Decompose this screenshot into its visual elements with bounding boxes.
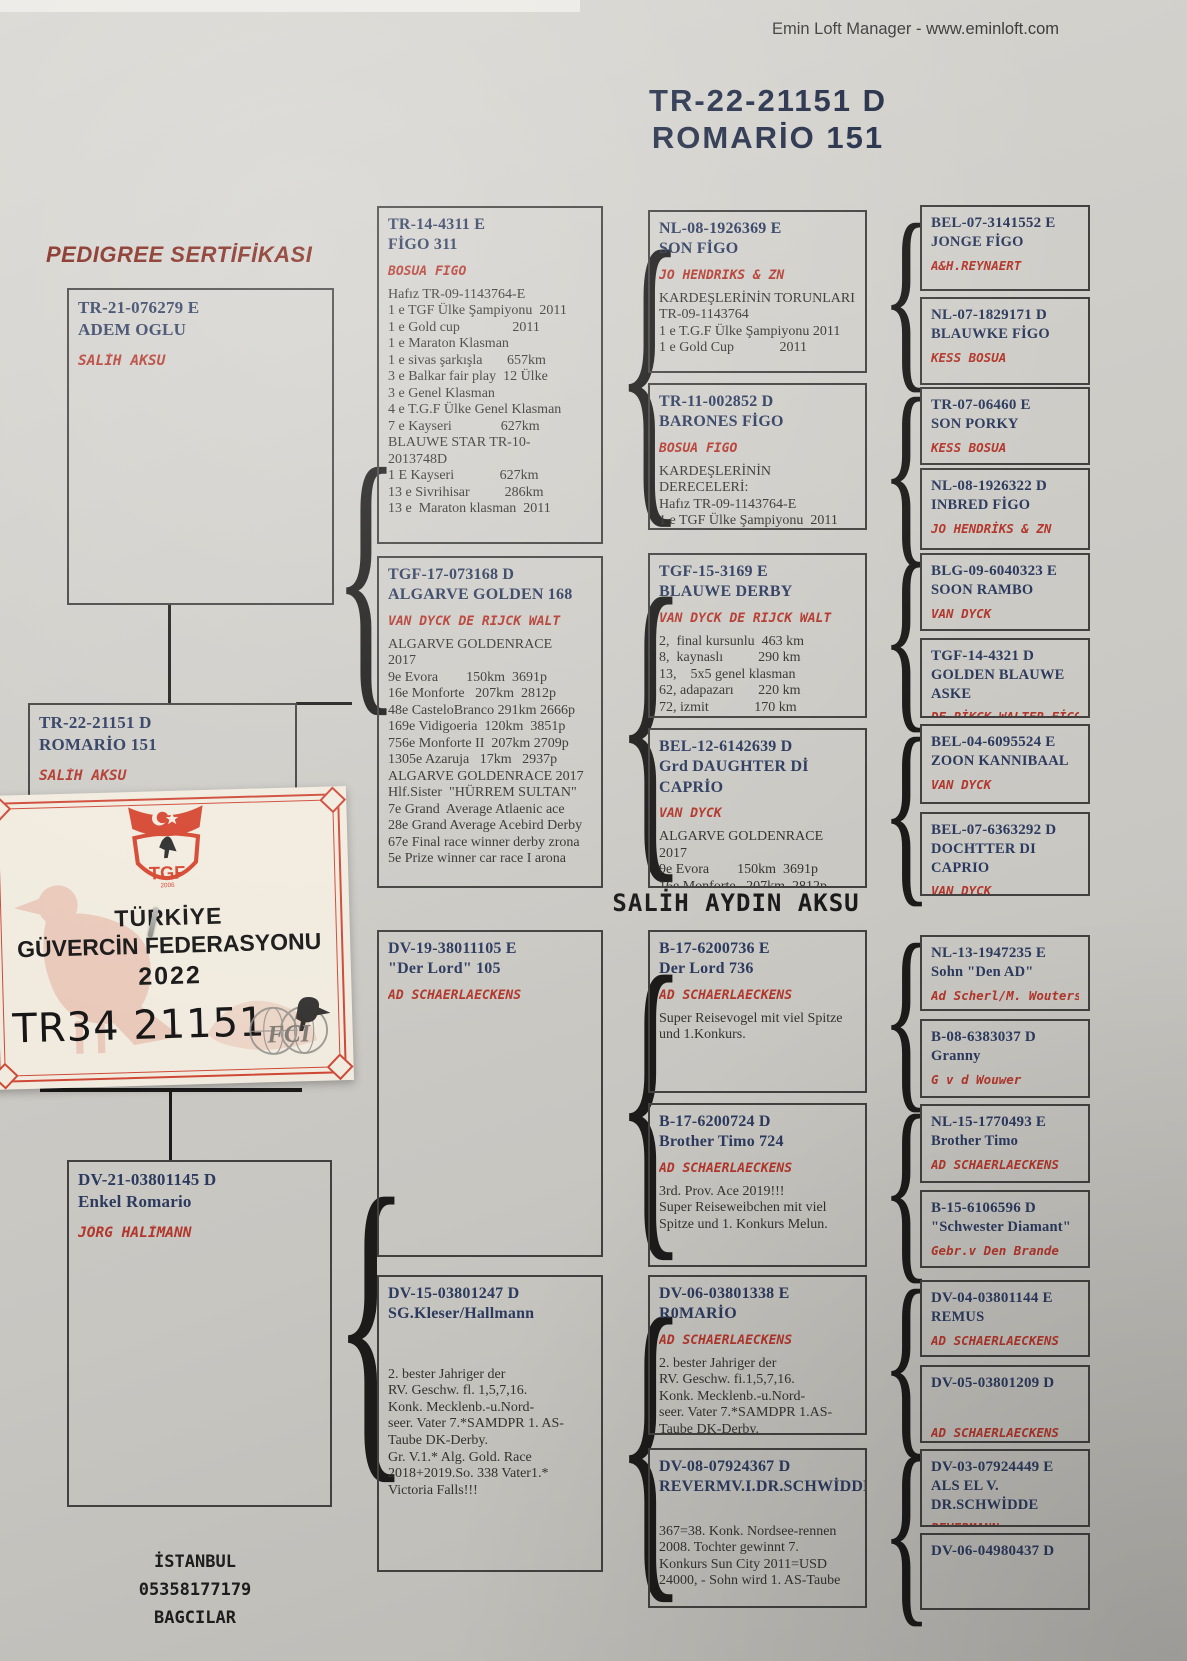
pedigree-box-sohn-den-ad: NL-13-1947235 E Sohn "Den AD" Ad Scherl/… — [920, 935, 1090, 1011]
ring-id: NL-15-1770493 E — [931, 1113, 1079, 1132]
ring-id: B-08-6383037 D — [931, 1028, 1079, 1047]
pedigree-box-der-lord-105: DV-19-38011105 E "Der Lord" 105 AD SCHAE… — [377, 930, 603, 1257]
owner-name: Gebr.v Den Brande — [931, 1243, 1079, 1258]
pigeon-name: DOCHTTER DI CAPRIO — [931, 840, 1079, 877]
pigeon-name: SON PORKY — [931, 415, 1079, 434]
pedigree-box-sire: TR-21-076279 E ADEM OGLU SALİH AKSU — [67, 288, 334, 605]
achievements: Super Reisevogel mit viel Spitze und 1.K… — [659, 1011, 856, 1044]
tgf-shield-logo-icon: TGF 2006 — [115, 801, 218, 907]
ring-id: TGF-17-073168 D — [388, 565, 592, 585]
pedigree-box-remus: DV-04-03801144 E REMUS AD SCHAERLAECKENS — [920, 1280, 1090, 1357]
pigeon-name: REVERMV.I.DR.SCHWİDDE — [659, 1477, 856, 1497]
pigeon-name: INBRED FİGO — [931, 496, 1079, 515]
fci-globes-pigeon-emblem-icon: FCI — [241, 986, 339, 1061]
achievements: ALGARVE GOLDENRACE 2017 9e Evora 150km 3… — [388, 637, 592, 868]
owner-name: DE RİKCK WALTER FİGO — [931, 709, 1079, 718]
pedigree-box-granny: B-08-6383037 D Granny G v d Wouwer — [920, 1019, 1090, 1098]
owner-name: KESS BOSUA — [931, 440, 1079, 455]
ring-id: NL-07-1829171 D — [931, 306, 1079, 325]
tgf-federation-sticker: TGF 2006 TÜRKİYE GÜVERCİN FEDERASYONU 20… — [0, 786, 354, 1090]
ring-id: DV-21-03801145 D — [78, 1169, 321, 1191]
pigeon-name: REMUS — [931, 1308, 1079, 1327]
achievements: 367=38. Konk. Nordsee-rennen 2008. Tocht… — [659, 1524, 856, 1590]
ring-id: TR-22-21151 D — [39, 712, 286, 734]
title-pigeon-name: ROMARİO 151 — [548, 119, 988, 156]
owner-name: Ad Scherl/M. Wouters — [931, 988, 1079, 1003]
pedigree-box-inbred-figo: NL-08-1926322 D INBRED FİGO JO HENDRİKS … — [920, 468, 1090, 550]
ring-id: BEL-12-6142639 D — [659, 737, 856, 757]
connector-line — [169, 1090, 172, 1160]
ring-id: B-17-6200724 D — [659, 1112, 856, 1132]
pedigree-box-zoon-kannibaal: BEL-04-6095524 E ZOON KANNIBAAL VAN DYCK — [920, 724, 1090, 804]
breeder-district: BAGCILAR — [85, 1604, 305, 1632]
pedigree-box-son-porky: TR-07-06460 E SON PORKY KESS BOSUA — [920, 387, 1090, 465]
achievements: 3rd. Prov. Ace 2019!!! Super Reiseweibch… — [659, 1184, 856, 1234]
owner-name: G v d Wouwer — [931, 1072, 1079, 1087]
achievements: 2. bester Jahriger der RV. Geschw. fi.1,… — [659, 1356, 856, 1435]
page-title: TR-22-21151 D ROMARİO 151 — [548, 82, 988, 156]
ring-id: DV-19-38011105 E — [388, 939, 592, 959]
breeder-city: İSTANBUL — [85, 1548, 305, 1576]
pigeon-name: JONGE FİGO — [931, 233, 1079, 252]
owner-name: AD SCHAERLAECKENS — [659, 1161, 856, 1177]
pedigree-certificate-photo: Emin Loft Manager - www.eminloft.com TR-… — [0, 0, 1187, 1661]
pigeon-name: Sohn "Den AD" — [931, 963, 1079, 982]
pigeon-name: ALS EL V. DR.SCHWİDDE — [931, 1477, 1079, 1514]
owner-name: AD SCHAERLAECKENS — [388, 988, 592, 1004]
ring-id: DV-08-07924367 D — [659, 1457, 856, 1477]
owner-name: KESS BOSUA — [931, 350, 1079, 365]
pedigree-box-barones-figo: TR-11-002852 D BARONES FİGO BOSUA FİGO K… — [648, 383, 867, 530]
pedigree-box-son-figo: NL-08-1926369 E SON FİGO JO HENDRİKS & Z… — [648, 210, 867, 373]
pedigree-box-grd-daughter-di-caprio: BEL-12-6142639 D Grd DAUGHTER Dİ CAPRİO … — [648, 728, 867, 888]
pigeon-name: R0MARİO — [659, 1304, 856, 1324]
ring-id: TR-07-06460 E — [931, 396, 1079, 415]
pedigree-box-romario-1338: DV-06-03801338 E R0MARİO AD SCHAERLAECKE… — [648, 1275, 867, 1435]
pedigree-box-dv-05-03801209: DV-05-03801209 D AD SCHAERLAECKENS — [920, 1365, 1090, 1443]
pedigree-box-brother-timo: NL-15-1770493 E Brother Timo AD SCHAERLA… — [920, 1104, 1090, 1183]
pigeon-name: Der Lord 736 — [659, 959, 856, 979]
pigeon-name: ADEM OGLU — [78, 319, 323, 341]
owner-name: AD SCHAERLAECKENS — [659, 1333, 856, 1349]
software-credit: Emin Loft Manager - www.eminloft.com — [772, 20, 1059, 39]
owner-name: AD SCHAERLAECKENS — [659, 988, 856, 1004]
pigeon-name: ROMARİO 151 — [39, 734, 286, 756]
pedigree-certificate-label: PEDIGREE SERTİFİKASI — [46, 242, 312, 268]
owner-name: VAN DYCK DE RİJCK WALT — [388, 614, 592, 630]
ring-serial-number: TR34 21151 — [12, 999, 266, 1052]
pedigree-box-figo-311: TR-14-4311 E FİGO 311 BOSUA FİGO Hafız T… — [377, 206, 603, 544]
ring-id: DV-15-03801247 D — [388, 1284, 592, 1304]
owner-name: JÖRG HALİMANN — [78, 1225, 321, 1242]
ring-id: BEL-04-6095524 E — [931, 733, 1079, 752]
ring-id: B-17-6200736 E — [659, 939, 856, 959]
ring-id: BEL-07-3141552 E — [931, 214, 1079, 233]
owner-name: VAN DYCK DE RİJCK WALT — [659, 611, 856, 627]
pedigree-box-blauwke-figo: NL-07-1829171 D BLAUWKE FİGO KESS BOSUA — [920, 297, 1090, 385]
achievements: KARDEŞLERİNİN TORUNLARI TR-09-1143764 1 … — [659, 291, 856, 357]
pedigree-box-soon-rambo: BLG-09-6040323 E SOON RAMBO VAN DYCK — [920, 553, 1090, 631]
pigeon-name: SOON RAMBO — [931, 581, 1079, 600]
pigeon-name: "Der Lord" 105 — [388, 959, 592, 979]
ring-id: B-15-6106596 D — [931, 1199, 1079, 1218]
owner-name: REVERMANN — [931, 1520, 1079, 1527]
achievements: 2, final kursunlu 463 km 8, kaynaslı 290… — [659, 634, 856, 717]
achievements: 2. bester Jahriger der RV. Geschw. fl. 1… — [388, 1367, 592, 1499]
pigeon-name: Grd DAUGHTER Dİ CAPRİO — [659, 757, 856, 798]
ring-id: BEL-07-6363292 D — [931, 821, 1079, 840]
pigeon-name: BARONES FİGO — [659, 412, 856, 432]
pedigree-box-schwester-diamant: B-15-6106596 D "Schwester Diamant" Gebr.… — [920, 1190, 1090, 1268]
pigeon-name: Brother Timo — [931, 1132, 1079, 1151]
pigeon-name: "Schwester Diamant" — [931, 1218, 1079, 1237]
owner-name: AD SCHAERLAECKENS — [931, 1425, 1079, 1440]
ring-id: DV-04-03801144 E — [931, 1289, 1079, 1308]
pedigree-box-revermv-dr-schwidde: DV-08-07924367 D REVERMV.I.DR.SCHWİDDE 3… — [648, 1448, 867, 1608]
photo-edge-highlight — [0, 0, 580, 12]
owner-name: AD SCHAERLAECKENS — [931, 1157, 1079, 1172]
ring-id: TGF-15-3169 E — [659, 562, 856, 582]
owner-name: VAN DYCK — [931, 777, 1079, 792]
owner-name: SALİH AKSU — [78, 353, 323, 370]
ring-id: BLG-09-6040323 E — [931, 562, 1079, 581]
pedigree-box-brother-timo-724: B-17-6200724 D Brother Timo 724 AD SCHAE… — [648, 1103, 867, 1267]
ring-id: TR-14-4311 E — [388, 215, 592, 235]
owner-name: VAN DYCK — [931, 883, 1079, 896]
ring-id: TR-21-076279 E — [78, 297, 323, 319]
ring-id: DV-06-04980437 D — [931, 1542, 1079, 1561]
ring-id: TGF-14-4321 D — [931, 647, 1079, 666]
owner-name: AD SCHAERLAECKENS — [931, 1333, 1079, 1348]
pedigree-box-blauwe-derby: TGF-15-3169 E BLAUWE DERBY VAN DYCK DE R… — [648, 553, 867, 718]
owner-name: SALİH AKSU — [39, 768, 286, 785]
owner-name: BOSUA FİGO — [659, 441, 856, 457]
connector-line — [168, 605, 171, 703]
achievements: Hafız TR-09-1143764-E 1 e TGF Ülke Şampi… — [388, 287, 592, 518]
pedigree-box-golden-blauwe-aske: TGF-14-4321 D GOLDEN BLAUWE ASKE DE RİKC… — [920, 638, 1090, 718]
owner-name: BOSUA FİGO — [388, 264, 592, 280]
pigeon-name: SON FİGO — [659, 239, 856, 259]
ring-id: DV-06-03801338 E — [659, 1284, 856, 1304]
pigeon-name: ALGARVE GOLDEN 168 — [388, 585, 592, 605]
owner-name: JO HENDRİKS & ZN — [659, 268, 856, 284]
pedigree-box-als-el-v-dr-schwidde: DV-03-07924449 E ALS EL V. DR.SCHWİDDE R… — [920, 1449, 1090, 1527]
pedigree-box-jonge-figo: BEL-07-3141552 E JONGE FİGO A&H.REYNAERT — [920, 205, 1090, 291]
pigeon-name: Granny — [931, 1047, 1079, 1066]
pigeon-name: BLAUWKE FİGO — [931, 325, 1079, 344]
ring-id: NL-08-1926369 E — [659, 219, 856, 239]
pigeon-name: Enkel Romario — [78, 1191, 321, 1213]
breeder-phone: 05358177179 — [85, 1576, 305, 1604]
owner-name: VAN DYCK — [659, 806, 856, 822]
tgf-logo-text: TGF — [149, 862, 186, 883]
pedigree-box-dochtter-di-caprio: BEL-07-6363292 D DOCHTTER DI CAPRIO VAN … — [920, 812, 1090, 896]
ring-id: DV-05-03801209 D — [931, 1374, 1079, 1393]
owner-name: VAN DYCK — [931, 606, 1079, 621]
pedigree-box-dv-06-04980437: DV-06-04980437 D — [920, 1533, 1090, 1610]
pigeon-name: Brother Timo 724 — [659, 1132, 856, 1152]
pigeon-name: SG.Kleser/Hallmann — [388, 1304, 592, 1324]
ring-id: DV-03-07924449 E — [931, 1458, 1079, 1477]
pigeon-name: BLAUWE DERBY — [659, 582, 856, 602]
ring-id: TR-11-002852 D — [659, 392, 856, 412]
fci-emblem-text: FCI — [266, 1020, 312, 1048]
pedigree-box-sg-kleser-hallmann: DV-15-03801247 D SG.Kleser/Hallmann 2. b… — [377, 1275, 603, 1572]
pedigree-box-dam: DV-21-03801145 D Enkel Romario JÖRG HALİ… — [67, 1160, 332, 1507]
owner-name: A&H.REYNAERT — [931, 258, 1079, 273]
pedigree-box-der-lord-736: B-17-6200736 E Der Lord 736 AD SCHAERLAE… — [648, 930, 867, 1093]
achievements: KARDEŞLERİNİN DERECELERİ: Hafız TR-09-11… — [659, 464, 856, 530]
breeder-contact-block: İSTANBUL 05358177179 BAGCILAR — [85, 1548, 305, 1632]
pigeon-name: FİGO 311 — [388, 235, 592, 255]
ring-id: NL-08-1926322 D — [931, 477, 1079, 496]
tgf-logo-year: 2006 — [160, 882, 175, 889]
pigeon-name: ZOON KANNIBAAL — [931, 752, 1079, 771]
title-ring-number: TR-22-21151 D — [548, 82, 988, 119]
owner-name: JO HENDRİKS & ZN — [931, 521, 1079, 536]
pigeon-name: GOLDEN BLAUWE ASKE — [931, 666, 1079, 703]
ring-id: NL-13-1947235 E — [931, 944, 1079, 963]
pedigree-box-algarve-golden-168: TGF-17-073168 D ALGARVE GOLDEN 168 VAN D… — [377, 556, 603, 888]
achievements: ALGARVE GOLDENRACE 2017 9e Evora 150km 3… — [659, 829, 856, 888]
